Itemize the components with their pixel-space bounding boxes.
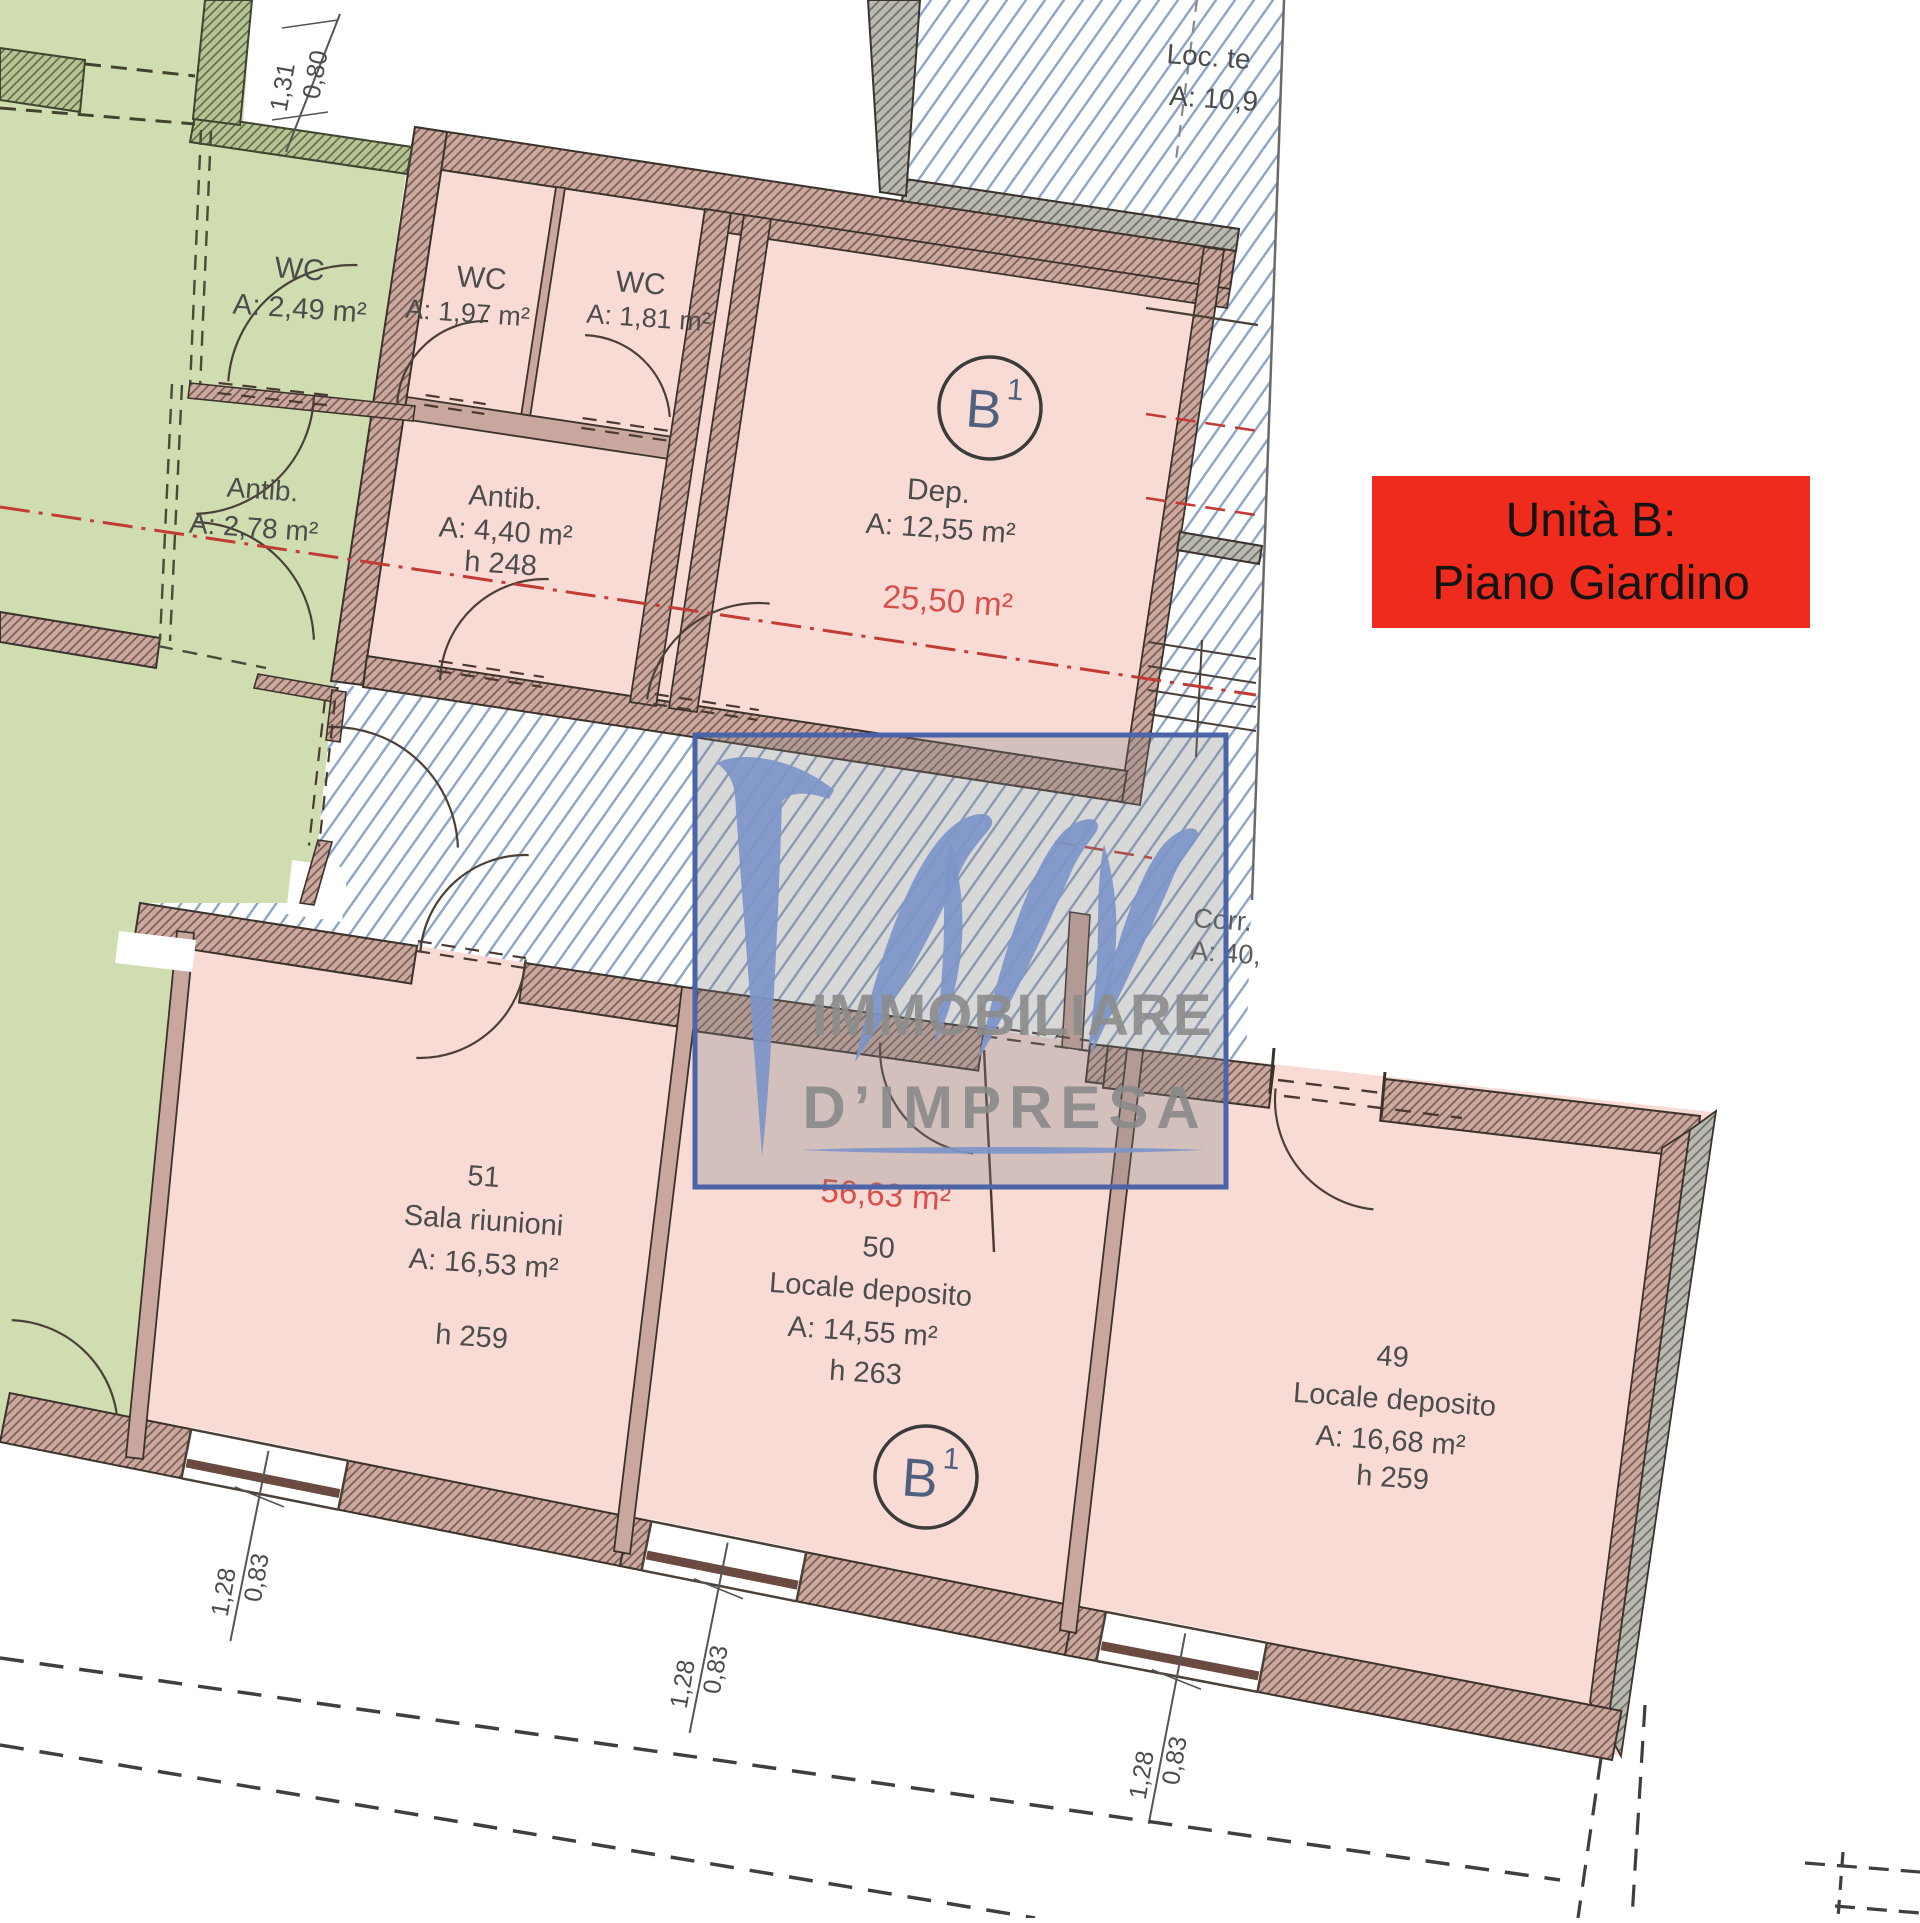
svg-text:h 248: h 248 [463,546,538,583]
svg-text:51: 51 [466,1160,500,1194]
svg-text:1: 1 [942,1442,961,1476]
svg-text:Piano Giardino: Piano Giardino [1432,557,1750,610]
svg-text:h 259: h 259 [1355,1460,1430,1497]
svg-text:1: 1 [1006,373,1025,407]
svg-text:h 263: h 263 [828,1355,903,1392]
svg-text:D’IMPRESA: D’IMPRESA [802,1074,1207,1141]
svg-text:h 259: h 259 [434,1319,509,1356]
svg-text:Unità B:: Unità B: [1506,494,1677,547]
svg-text:A: 10,9: A: 10,9 [1168,80,1259,117]
svg-text:49: 49 [1375,1340,1409,1374]
svg-text:WC: WC [456,260,508,296]
svg-text:WC: WC [615,265,667,301]
svg-text:Dep.: Dep. [906,473,972,510]
svg-text:B: B [964,378,1004,440]
svg-text:B: B [900,1447,940,1509]
svg-text:50: 50 [861,1231,895,1265]
svg-text:Antib.: Antib. [226,472,300,508]
svg-text:Loc. te: Loc. te [1166,38,1252,75]
svg-text:Antib.: Antib. [468,479,544,516]
svg-text:WC: WC [274,251,326,287]
svg-text:IMMOBILIARE: IMMOBILIARE [812,983,1213,1048]
